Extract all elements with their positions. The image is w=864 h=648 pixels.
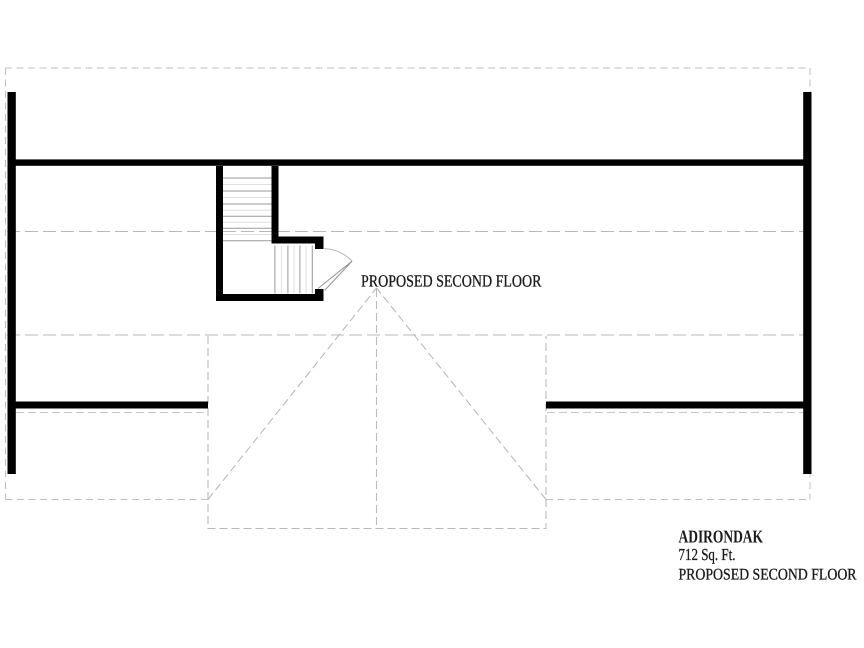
svg-text:712 Sq. Ft.: 712 Sq. Ft.	[679, 545, 736, 564]
svg-text:PROPOSED SECOND FLOOR: PROPOSED SECOND FLOOR	[361, 272, 542, 291]
svg-text:PROPOSED SECOND FLOOR: PROPOSED SECOND FLOOR	[679, 566, 857, 584]
svg-text:ADIRONDAK: ADIRONDAK	[679, 527, 764, 547]
